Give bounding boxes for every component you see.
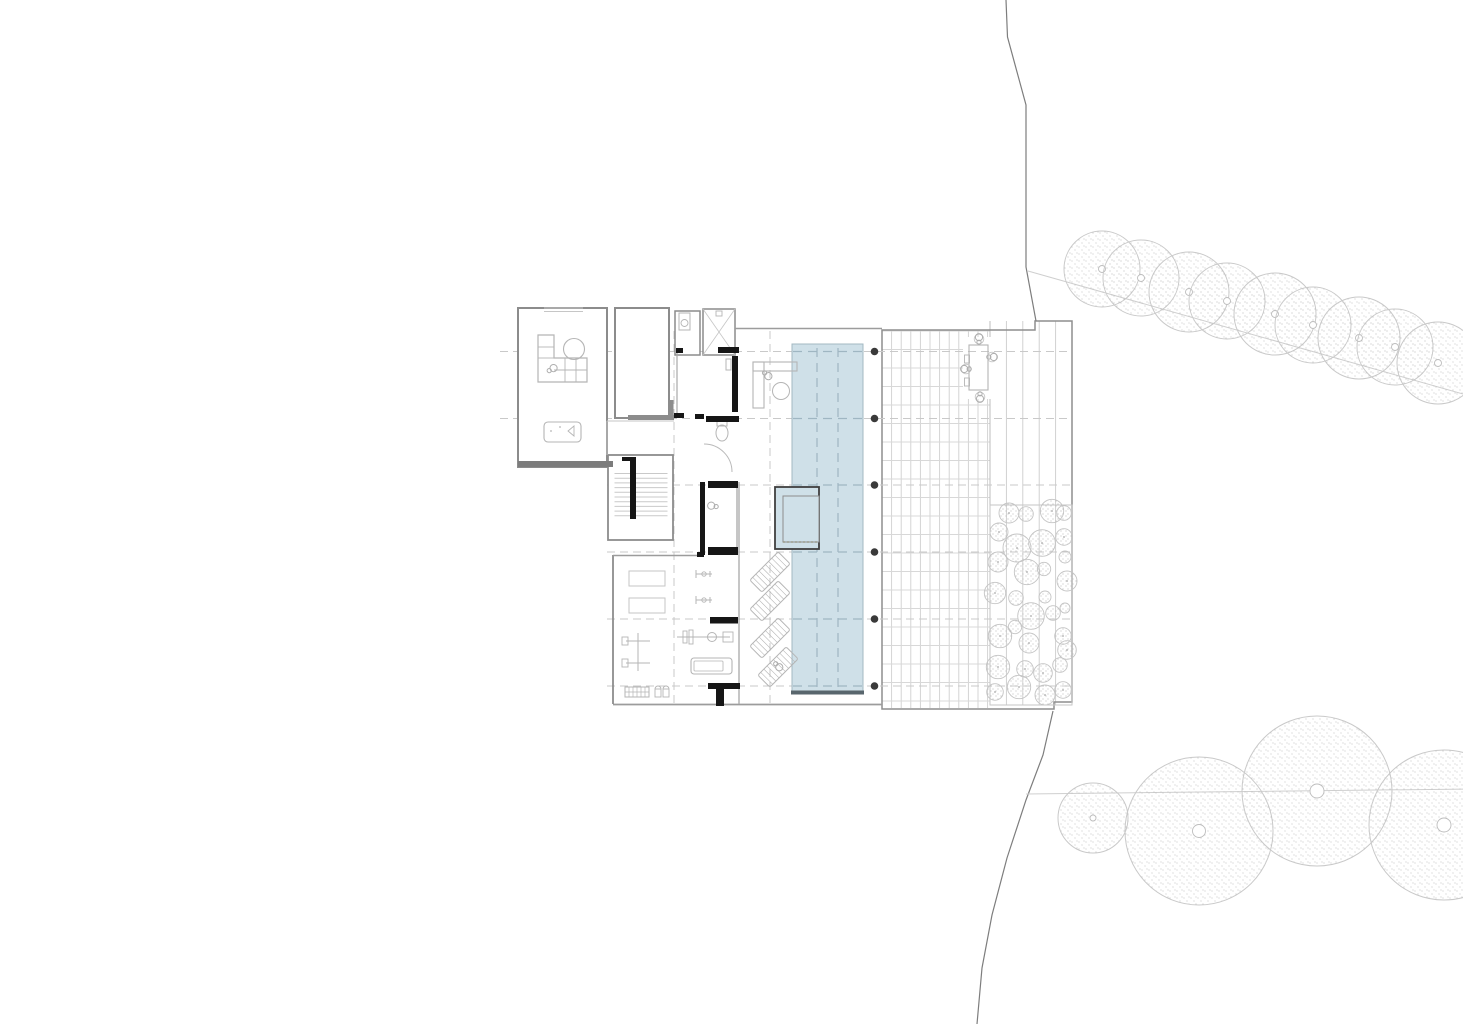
shrub [1037,562,1050,575]
structural-columns [871,348,879,690]
treadmill [691,658,732,674]
shrub [1019,507,1034,522]
spa-platform [775,487,819,549]
shrub [1046,606,1061,621]
kettlebell [655,689,661,697]
gym-mat [629,571,665,586]
column [871,615,879,623]
floor-plan-svg [0,0,1463,1024]
exercise-bike [696,570,712,578]
column [871,682,879,690]
shrub [1057,506,1072,521]
shrub-bed [984,499,1077,705]
shrub [1008,620,1021,633]
gym-mat [629,598,665,613]
shrub [1009,591,1024,606]
site-plan-canvas [0,0,1463,1024]
toilet [716,425,728,441]
column [871,481,879,489]
office-chair [773,383,790,400]
column [871,348,879,356]
storage-room [615,308,669,418]
person-figure [707,502,719,511]
tree [1242,716,1392,866]
shrub [1039,591,1051,603]
lounge-room [518,308,607,467]
shrub [1060,603,1070,613]
tree [1058,783,1128,853]
site-boundary-lower [977,711,1053,1024]
site-boundary-upper [1006,0,1036,321]
shrub [1053,658,1068,673]
shrub [1059,551,1071,563]
column [871,415,879,423]
sun-lounger [750,581,790,621]
column [871,548,879,556]
kettlebell [663,689,669,697]
exercise-bike [696,596,712,604]
desk [753,362,797,371]
